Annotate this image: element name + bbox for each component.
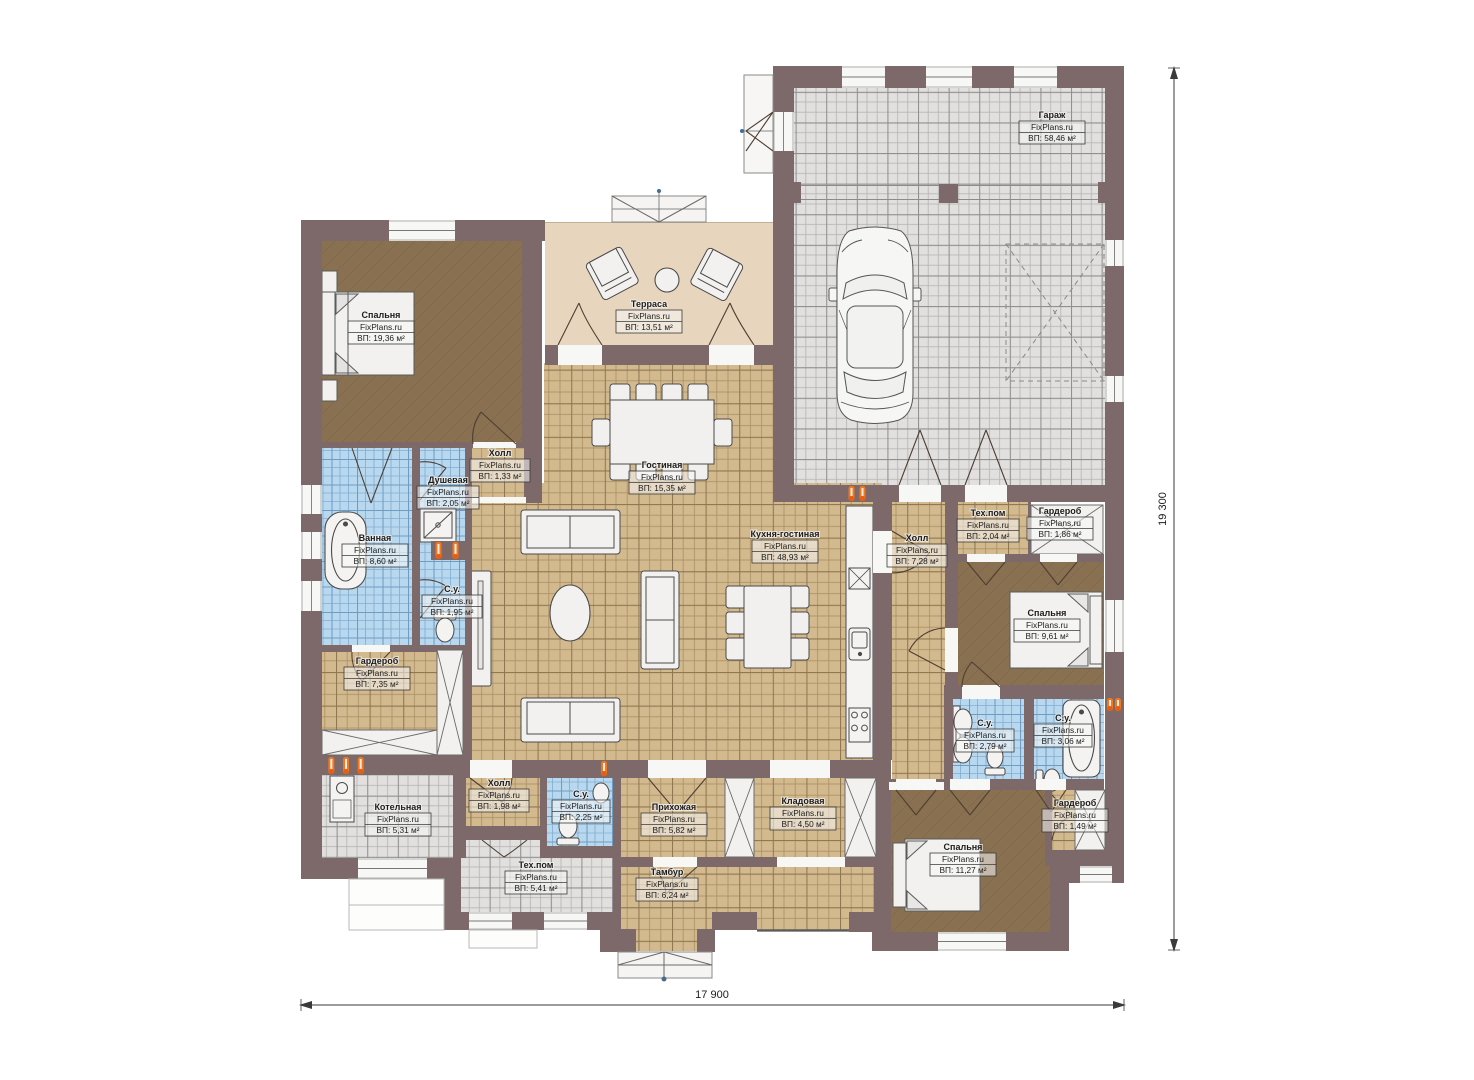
svg-text:Холл: Холл xyxy=(906,533,929,543)
svg-text:Холл: Холл xyxy=(488,778,511,788)
svg-text:FixPlans.ru: FixPlans.ru xyxy=(478,790,520,800)
svg-text:ВП: 19,36 м²: ВП: 19,36 м² xyxy=(357,333,405,343)
svg-text:Спальня: Спальня xyxy=(362,310,401,320)
svg-text:FixPlans.ru: FixPlans.ru xyxy=(764,541,806,551)
svg-text:Гардероб: Гардероб xyxy=(1054,798,1097,808)
svg-text:FixPlans.ru: FixPlans.ru xyxy=(431,596,473,606)
svg-text:ВП: 1,86 м²: ВП: 1,86 м² xyxy=(1038,529,1081,539)
svg-text:FixPlans.ru: FixPlans.ru xyxy=(1039,518,1081,528)
svg-text:Котельная: Котельная xyxy=(374,802,421,812)
svg-text:FixPlans.ru: FixPlans.ru xyxy=(1054,810,1096,820)
svg-text:Холл: Холл xyxy=(489,448,512,458)
svg-text:FixPlans.ru: FixPlans.ru xyxy=(896,545,938,555)
svg-text:FixPlans.ru: FixPlans.ru xyxy=(560,801,602,811)
svg-text:ВП: 2,05 м²: ВП: 2,05 м² xyxy=(426,498,469,508)
svg-text:FixPlans.ru: FixPlans.ru xyxy=(479,460,521,470)
svg-text:FixPlans.ru: FixPlans.ru xyxy=(515,872,557,882)
svg-text:FixPlans.ru: FixPlans.ru xyxy=(1042,725,1084,735)
svg-text:Гардероб: Гардероб xyxy=(1039,506,1082,516)
svg-text:ВП: 2,04 м²: ВП: 2,04 м² xyxy=(966,531,1009,541)
svg-text:ВП: 15,35 м²: ВП: 15,35 м² xyxy=(638,483,686,493)
svg-text:Тех.пом: Тех.пом xyxy=(971,508,1006,518)
svg-text:ВП: 3,06 м²: ВП: 3,06 м² xyxy=(1041,736,1084,746)
svg-text:FixPlans.ru: FixPlans.ru xyxy=(1031,122,1073,132)
svg-text:С.у.: С.у. xyxy=(444,584,460,594)
svg-text:ВП: 13,51 м²: ВП: 13,51 м² xyxy=(625,322,673,332)
svg-text:ВП: 1,49 м²: ВП: 1,49 м² xyxy=(1053,821,1096,831)
svg-text:Тамбур: Тамбур xyxy=(651,867,684,877)
svg-text:Ванная: Ванная xyxy=(359,533,392,543)
svg-text:FixPlans.ru: FixPlans.ru xyxy=(782,808,824,818)
svg-text:19 300: 19 300 xyxy=(1157,492,1169,526)
svg-text:Кухня-гостиная: Кухня-гостиная xyxy=(751,529,820,539)
svg-text:Кладовая: Кладовая xyxy=(781,796,824,806)
svg-text:ВП: 7,28 м²: ВП: 7,28 м² xyxy=(895,556,938,566)
svg-text:FixPlans.ru: FixPlans.ru xyxy=(354,545,396,555)
svg-text:ВП: 2,25 м²: ВП: 2,25 м² xyxy=(559,812,602,822)
svg-text:ВП: 1,33 м²: ВП: 1,33 м² xyxy=(478,471,521,481)
svg-text:FixPlans.ru: FixPlans.ru xyxy=(628,311,670,321)
svg-text:FixPlans.ru: FixPlans.ru xyxy=(964,730,1006,740)
svg-text:С.у.: С.у. xyxy=(573,789,589,799)
svg-text:ВП: 6,24 м²: ВП: 6,24 м² xyxy=(645,890,688,900)
svg-text:FixPlans.ru: FixPlans.ru xyxy=(356,668,398,678)
svg-text:Прихожая: Прихожая xyxy=(652,802,696,812)
svg-text:17 900: 17 900 xyxy=(695,989,729,1001)
svg-text:С.у.: С.у. xyxy=(1055,713,1071,723)
svg-text:Спальня: Спальня xyxy=(944,842,983,852)
svg-text:FixPlans.ru: FixPlans.ru xyxy=(641,472,683,482)
svg-text:ВП: 5,31 м²: ВП: 5,31 м² xyxy=(376,825,419,835)
svg-text:FixPlans.ru: FixPlans.ru xyxy=(942,854,984,864)
svg-text:Гараж: Гараж xyxy=(1039,110,1066,120)
svg-text:ВП: 9,61 м²: ВП: 9,61 м² xyxy=(1025,631,1068,641)
svg-text:ВП: 2,79 м²: ВП: 2,79 м² xyxy=(963,741,1006,751)
svg-text:ВП: 48,93 м²: ВП: 48,93 м² xyxy=(761,552,809,562)
svg-text:Гостиная: Гостиная xyxy=(642,460,683,470)
svg-text:FixPlans.ru: FixPlans.ru xyxy=(360,322,402,332)
svg-text:Душевая: Душевая xyxy=(428,475,468,485)
svg-text:ВП: 58,46 м²: ВП: 58,46 м² xyxy=(1028,133,1076,143)
svg-text:ВП: 4,50 м²: ВП: 4,50 м² xyxy=(781,819,824,829)
svg-text:Гардероб: Гардероб xyxy=(356,656,399,666)
svg-text:Тех.пом: Тех.пом xyxy=(519,860,554,870)
svg-text:ВП: 8,60 м²: ВП: 8,60 м² xyxy=(353,556,396,566)
svg-text:Терраса: Терраса xyxy=(631,299,668,309)
svg-text:Спальня: Спальня xyxy=(1028,608,1067,618)
svg-text:FixPlans.ru: FixPlans.ru xyxy=(427,487,469,497)
svg-text:ВП: 1,98 м²: ВП: 1,98 м² xyxy=(477,801,520,811)
svg-text:ВП: 7,35 м²: ВП: 7,35 м² xyxy=(355,679,398,689)
svg-text:ВП: 5,41 м²: ВП: 5,41 м² xyxy=(514,883,557,893)
svg-text:FixPlans.ru: FixPlans.ru xyxy=(646,879,688,889)
svg-text:FixPlans.ru: FixPlans.ru xyxy=(653,814,695,824)
svg-text:ВП: 5,82 м²: ВП: 5,82 м² xyxy=(652,825,695,835)
svg-text:ВП: 1,95 м²: ВП: 1,95 м² xyxy=(430,607,473,617)
svg-text:FixPlans.ru: FixPlans.ru xyxy=(377,814,419,824)
svg-text:FixPlans.ru: FixPlans.ru xyxy=(1026,620,1068,630)
svg-text:FixPlans.ru: FixPlans.ru xyxy=(967,520,1009,530)
svg-text:С.у.: С.у. xyxy=(977,718,993,728)
svg-text:ВП: 11,27 м²: ВП: 11,27 м² xyxy=(939,865,986,875)
